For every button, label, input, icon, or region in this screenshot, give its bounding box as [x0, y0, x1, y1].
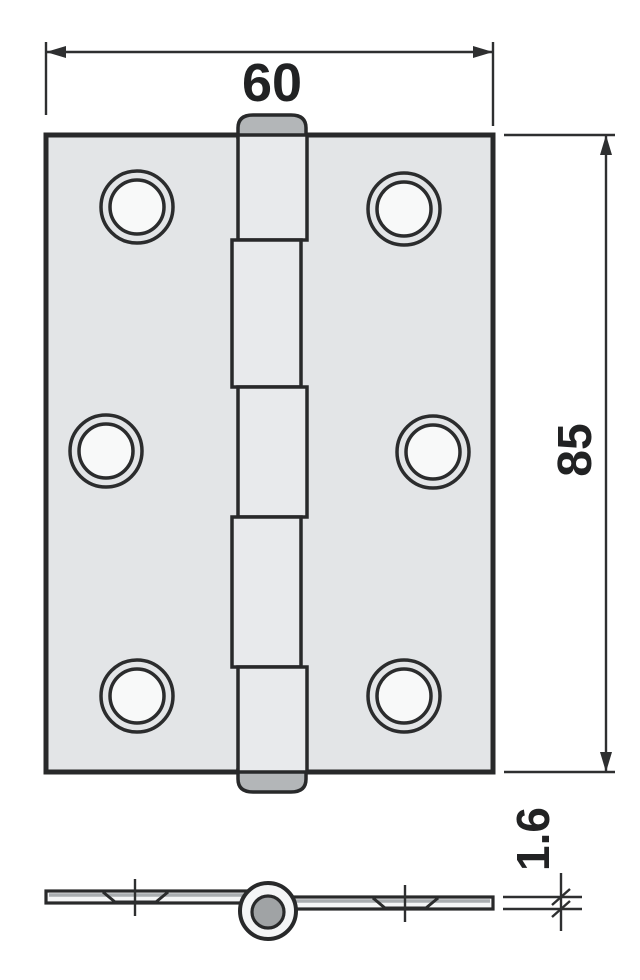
- arrow-right-icon: [473, 46, 493, 58]
- hole-bore: [110, 180, 164, 234]
- width-value: 60: [242, 53, 302, 113]
- knuckle-segment-4: [232, 517, 301, 667]
- arrow-left-icon: [46, 46, 66, 58]
- thickness-dimension: 1.6: [503, 807, 582, 931]
- hinge-knuckle: [232, 135, 307, 772]
- hole-bore: [377, 669, 431, 723]
- hole-bore: [110, 669, 164, 723]
- hole-bore: [377, 182, 431, 236]
- hinge-pin: [252, 896, 284, 928]
- front-view: [46, 115, 493, 792]
- screw-hole-top-left: [101, 171, 173, 243]
- knuckle-segment-1: [238, 135, 307, 240]
- arrow-down-icon: [600, 752, 612, 772]
- knuckle-segment-3: [238, 387, 307, 517]
- edge-view: [46, 879, 493, 939]
- screw-hole-middle-left: [70, 415, 142, 487]
- screw-hole-middle-right: [397, 416, 469, 488]
- screw-hole-bottom-right: [368, 660, 440, 732]
- knuckle-segment-5: [238, 667, 307, 772]
- hole-bore: [406, 425, 460, 479]
- height-value: 85: [549, 423, 602, 476]
- height-dimension: 85: [504, 135, 615, 772]
- hinge-technical-drawing: 60 85 1.6: [0, 0, 640, 980]
- knuckle-segment-2: [232, 240, 301, 387]
- arrow-up-icon: [600, 135, 612, 155]
- screw-hole-bottom-left: [101, 660, 173, 732]
- hole-bore: [79, 424, 133, 478]
- screw-hole-top-right: [368, 173, 440, 245]
- thickness-value: 1.6: [507, 807, 559, 871]
